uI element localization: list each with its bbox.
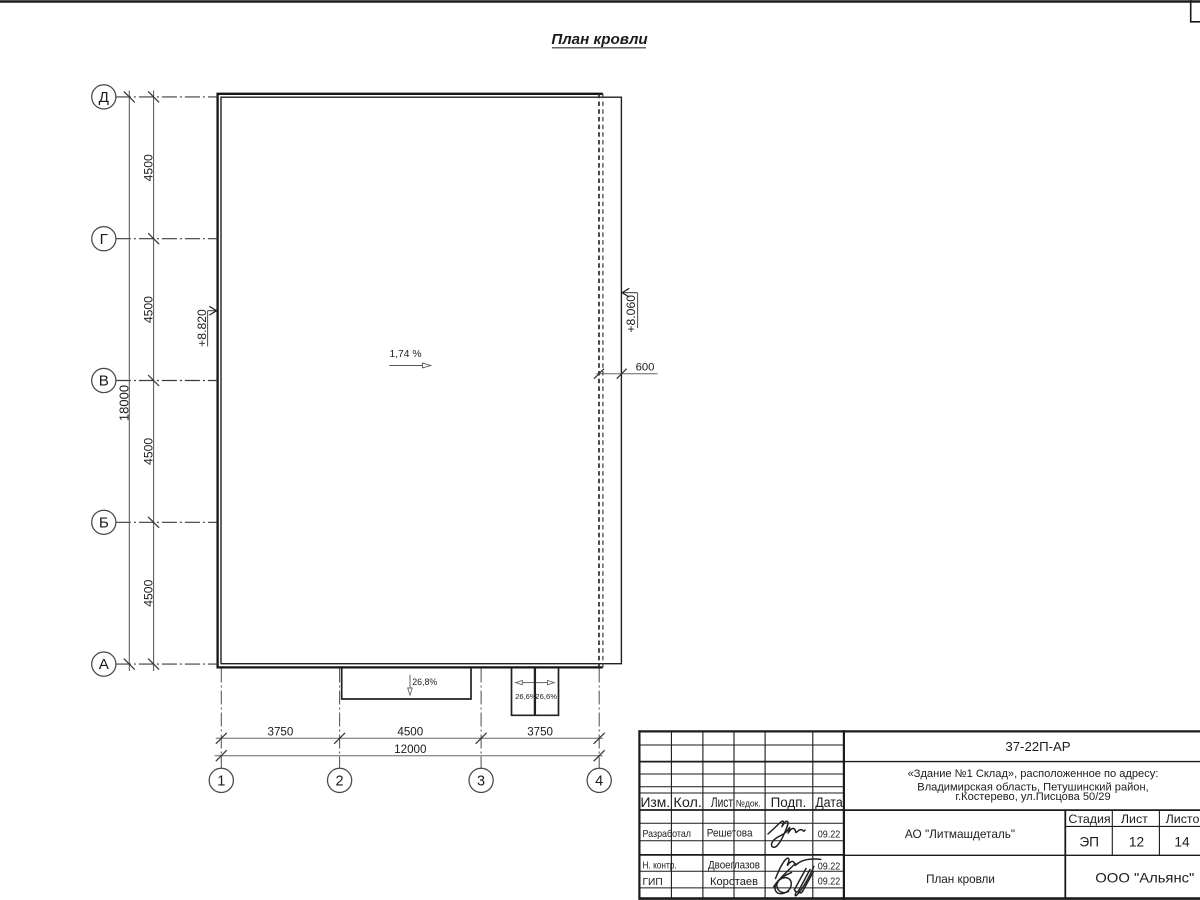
svg-text:ЭП: ЭП — [1079, 834, 1099, 849]
svg-text:«Здание №1 Склад», расположенн: «Здание №1 Склад», расположенное по адре… — [908, 768, 1159, 780]
svg-text:4500: 4500 — [142, 579, 156, 606]
svg-text:37-22П-АР: 37-22П-АР — [1005, 739, 1070, 754]
svg-text:26,8%: 26,8% — [412, 677, 437, 687]
svg-text:3750: 3750 — [527, 726, 553, 739]
svg-text:26,6%: 26,6% — [515, 692, 537, 701]
svg-text:18000: 18000 — [117, 385, 132, 421]
svg-text:Б: Б — [99, 514, 109, 531]
svg-text:4500: 4500 — [142, 296, 156, 323]
svg-text:А: А — [99, 656, 110, 673]
svg-text:14: 14 — [1174, 834, 1190, 849]
svg-text:3: 3 — [477, 774, 485, 790]
svg-text:09.22: 09.22 — [818, 877, 841, 888]
svg-text:2: 2 — [336, 774, 344, 790]
svg-text:г.Костерево, ул.Писцова 50/29: г.Костерево, ул.Писцова 50/29 — [955, 791, 1110, 803]
svg-text:АО "Литмашдеталь": АО "Литмашдеталь" — [905, 827, 1015, 841]
svg-text:Лист: Лист — [711, 795, 734, 811]
svg-text:Коротаев: Коротаев — [710, 876, 758, 888]
svg-text:3750: 3750 — [268, 726, 294, 739]
svg-text:Стадия: Стадия — [1068, 812, 1110, 826]
svg-text:План кровли: План кровли — [926, 873, 995, 886]
svg-text:1,74 %: 1,74 % — [389, 349, 421, 360]
svg-text:ГИП: ГИП — [643, 877, 663, 888]
svg-text:Н. контр.: Н. контр. — [643, 861, 677, 872]
svg-text:Двоеглазов: Двоеглазов — [708, 860, 760, 872]
svg-text:09.22: 09.22 — [818, 829, 841, 840]
svg-text:4500: 4500 — [142, 438, 156, 465]
svg-text:09.22: 09.22 — [818, 862, 841, 873]
svg-text:12000: 12000 — [394, 743, 426, 756]
svg-text:Листов: Листов — [1166, 812, 1200, 826]
svg-text:4500: 4500 — [397, 726, 423, 739]
svg-text:+8.820: +8.820 — [195, 309, 209, 347]
svg-text:Изм.: Изм. — [640, 795, 670, 811]
svg-text:ООО "Альянс": ООО "Альянс" — [1095, 871, 1194, 886]
svg-text:План кровли: План кровли — [551, 31, 648, 48]
svg-text:Разработал: Разработал — [643, 828, 692, 840]
svg-text:600: 600 — [636, 361, 655, 373]
svg-text:Г: Г — [100, 231, 108, 248]
svg-text:Подп.: Подп. — [771, 795, 807, 811]
svg-text:Решетова: Решетова — [707, 828, 753, 840]
svg-text:В: В — [99, 373, 109, 390]
svg-text:+8.060: +8.060 — [624, 295, 638, 333]
svg-text:№док.: №док. — [736, 799, 761, 810]
svg-text:Дата: Дата — [815, 795, 843, 811]
svg-text:4: 4 — [595, 774, 603, 790]
svg-text:26,6%: 26,6% — [535, 692, 557, 701]
svg-text:1: 1 — [217, 774, 225, 790]
svg-text:Д: Д — [99, 89, 109, 106]
svg-text:Лист: Лист — [1121, 812, 1148, 826]
svg-text:4500: 4500 — [142, 154, 156, 181]
svg-text:12: 12 — [1129, 834, 1144, 849]
svg-text:Кол.: Кол. — [673, 795, 702, 811]
